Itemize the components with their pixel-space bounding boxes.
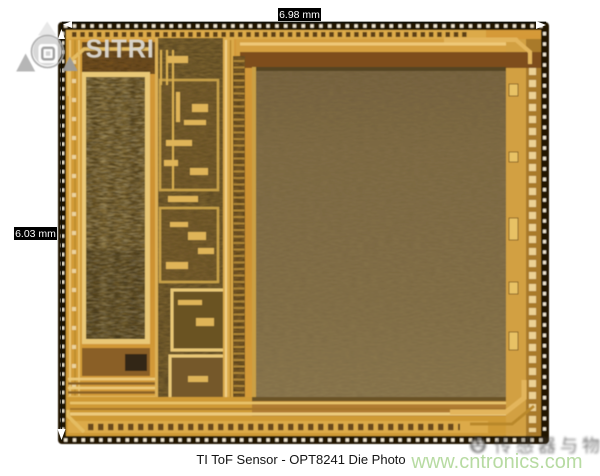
- svg-text:TI ToF Sensor - OPT8241 Die Ph: TI ToF Sensor - OPT8241 Die Photo: [196, 452, 405, 467]
- svg-text:6.03 mm: 6.03 mm: [15, 228, 56, 240]
- svg-text:SITRI: SITRI: [86, 36, 155, 64]
- svg-text:www.cntronics.com: www.cntronics.com: [410, 451, 582, 473]
- svg-text:6.98 mm: 6.98 mm: [279, 9, 320, 21]
